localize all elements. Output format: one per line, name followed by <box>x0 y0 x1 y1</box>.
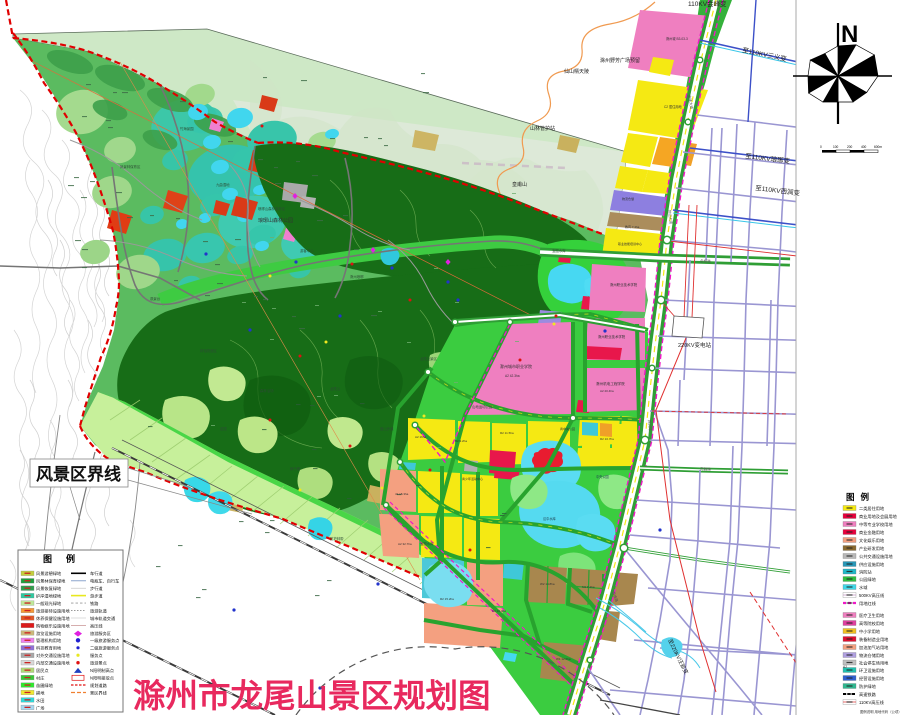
svg-text:规划道路: 规划道路 <box>90 682 108 689</box>
svg-text:内部交通设施用地: 内部交通设施用地 <box>36 660 70 667</box>
svg-text:游览设施用地: 游览设施用地 <box>36 630 62 637</box>
svg-text:500KV高压线: 500KV高压线 <box>859 592 885 599</box>
svg-text:全椒路: 全椒路 <box>700 258 711 264</box>
svg-text:中央公园: 中央公园 <box>596 474 609 479</box>
svg-text:休养保健设施用地: 休养保健设施用地 <box>36 615 70 622</box>
svg-text:旅游景点: 旅游景点 <box>90 660 107 667</box>
svg-text:社会停车场用地: 社会停车场用地 <box>859 660 889 667</box>
svg-text:高速铁路: 高速铁路 <box>859 691 877 698</box>
svg-text:山地运动公园: 山地运动公园 <box>472 404 493 409</box>
svg-text:竹海景园: 竹海景园 <box>180 126 194 131</box>
svg-text:R2 10.4ha: R2 10.4ha <box>492 609 506 613</box>
svg-text:用地红线: 用地红线 <box>859 600 877 607</box>
svg-text:110KV会峰变: 110KV会峰变 <box>688 0 727 8</box>
svg-text:装备制造业用地: 装备制造业用地 <box>859 636 889 643</box>
svg-text:600m: 600m <box>874 145 882 149</box>
svg-text:滁州琅琊: 滁州琅琊 <box>350 274 364 279</box>
svg-text:图例说明 用地代码（公顷）: 图例说明 用地代码（公顷） <box>860 709 900 714</box>
svg-text:护岸湿地绿地: 护岸湿地绿地 <box>36 593 62 600</box>
svg-text:村庄: 村庄 <box>36 675 44 682</box>
svg-text:城市轨道交通: 城市轨道交通 <box>90 615 116 622</box>
svg-text:A2 42.3ha: A2 42.3ha <box>505 374 520 378</box>
svg-text:购物娱乐设施用地: 购物娱乐设施用地 <box>36 622 70 629</box>
svg-text:物流仓储用地: 物流仓储用地 <box>859 652 885 659</box>
svg-text:龙尾山: 龙尾山 <box>330 386 341 391</box>
svg-text:议中水库: 议中水库 <box>543 516 557 521</box>
svg-text:服务点: 服务点 <box>90 652 103 659</box>
svg-text:科技教育用地: 科技教育用地 <box>36 645 62 652</box>
svg-text:图例: 图例 <box>846 492 875 502</box>
svg-text:教育 7.4ha: 教育 7.4ha <box>625 224 640 229</box>
svg-text:文化娱乐用地: 文化娱乐用地 <box>859 537 885 544</box>
svg-text:旅游轨道: 旅游轨道 <box>90 608 108 615</box>
svg-text:物流仓储: 物流仓储 <box>622 196 634 201</box>
svg-text:青少年活动中心: 青少年活动中心 <box>462 476 483 481</box>
svg-text:滁州野芳广场预留: 滁州野芳广场预留 <box>600 57 640 64</box>
svg-text:狮子峰: 狮子峰 <box>290 466 301 471</box>
svg-text:旅游接待设施用地: 旅游接待设施用地 <box>36 608 70 615</box>
svg-text:滁州城市职业学院: 滁州城市职业学院 <box>500 363 532 369</box>
svg-text:电瓶车、自行车: 电瓶车、自行车 <box>90 578 119 585</box>
svg-text:W1 12.6ha: W1 12.6ha <box>556 657 571 661</box>
svg-text:高压线: 高压线 <box>90 622 103 629</box>
svg-text:滁州职业技术学院: 滁州职业技术学院 <box>598 334 626 339</box>
svg-text:A2 16ha: A2 16ha <box>415 435 427 439</box>
svg-text:管理机构用地: 管理机构用地 <box>36 637 62 644</box>
svg-text:高等院校用地: 高等院校用地 <box>859 620 885 627</box>
svg-text:林相改造区: 林相改造区 <box>200 348 218 353</box>
svg-text:R2 11.5ha: R2 11.5ha <box>500 431 514 435</box>
svg-text:图例: 图例 <box>43 553 89 564</box>
svg-text:N阳明接驳点: N阳明接驳点 <box>90 675 114 682</box>
svg-text:广场: 广场 <box>36 704 44 711</box>
svg-text:二类居住用地: 二类居住用地 <box>859 505 885 512</box>
svg-text:滁州职业技术学院: 滁州职业技术学院 <box>610 282 638 287</box>
svg-text:220KV变电站: 220KV变电站 <box>678 341 712 349</box>
svg-text:W2 14.8ha: W2 14.8ha <box>540 582 555 586</box>
svg-text:A2: A2 <box>843 665 847 669</box>
svg-text:R2 15.2ha: R2 15.2ha <box>440 597 454 601</box>
svg-text:产业研发用地: 产业研发用地 <box>859 545 885 552</box>
svg-text:风景林保育绿地: 风景林保育绿地 <box>36 578 66 585</box>
svg-text:供应设施用地: 供应设施用地 <box>859 561 885 568</box>
svg-text:防护绿地: 防护绿地 <box>859 683 877 690</box>
svg-text:山林管护站: 山林管护站 <box>530 125 555 132</box>
svg-text:宝图水库: 宝图水库 <box>420 541 434 546</box>
svg-text:防护林带: 防护林带 <box>330 536 344 541</box>
svg-text:宝图水库: 宝图水库 <box>552 248 566 253</box>
svg-text:旅游服务区: 旅游服务区 <box>90 630 111 637</box>
svg-text:滁州机电工程学院: 滁州机电工程学院 <box>596 381 625 386</box>
svg-text:职业技能培训中心: 职业技能培训中心 <box>618 241 642 246</box>
svg-text:耕地: 耕地 <box>36 689 45 696</box>
svg-text:A2 32.7ha: A2 32.7ha <box>398 542 412 546</box>
svg-text:仙山糈天陵: 仙山糈天陵 <box>564 68 589 75</box>
svg-text:M1 8.4ha: M1 8.4ha <box>582 585 595 589</box>
svg-text:N: N <box>841 21 858 48</box>
svg-text:加油加气站用地: 加油加气站用地 <box>859 644 889 651</box>
svg-text:花园路: 花园路 <box>700 466 711 472</box>
svg-text:苗圃绿地: 苗圃绿地 <box>36 682 54 689</box>
svg-text:对外交通设施用地: 对外交通设施用地 <box>36 652 70 659</box>
svg-text:中等专业学校用地: 中等专业学校用地 <box>859 521 893 528</box>
svg-text:R2 10.7ha: R2 10.7ha <box>600 437 614 441</box>
svg-text:苗圃: 苗圃 <box>220 426 227 431</box>
svg-text:公园绿地: 公园绿地 <box>859 576 877 583</box>
svg-text:C2 居住用地: C2 居住用地 <box>664 104 683 109</box>
svg-text:盘山步道: 盘山步道 <box>380 426 394 431</box>
svg-text:100: 100 <box>833 145 839 149</box>
svg-text:商业用地及会展用地: 商业用地及会展用地 <box>859 513 898 520</box>
svg-text:琅琊山森林康养区: 琅琊山森林康养区 <box>258 206 286 211</box>
svg-text:环卫设施用地: 环卫设施用地 <box>859 667 885 674</box>
svg-text:森林浴场: 森林浴场 <box>260 388 274 393</box>
svg-text:游客中心: 游客中心 <box>300 248 314 253</box>
svg-text:200: 200 <box>847 145 853 149</box>
svg-text:琅琊山森林公园: 琅琊山森林公园 <box>258 217 293 224</box>
svg-text:中小学用地: 中小学用地 <box>859 628 881 635</box>
svg-text:铁路: 铁路 <box>90 600 99 607</box>
svg-text:A2 20.4ha: A2 20.4ha <box>600 389 614 393</box>
svg-text:N阳明制高点: N阳明制高点 <box>90 667 114 674</box>
svg-text:42 15.3ha: 42 15.3ha <box>395 492 409 496</box>
svg-text:400: 400 <box>861 145 867 149</box>
svg-text:凤景林保育区: 凤景林保育区 <box>120 164 141 169</box>
svg-text:龙尾山景区: 龙尾山景区 <box>420 356 438 361</box>
svg-text:商业金融用地: 商业金融用地 <box>859 529 885 536</box>
svg-text:景区界线: 景区界线 <box>90 689 108 696</box>
svg-text:水域: 水域 <box>859 584 868 590</box>
svg-text:风景恢复绿地: 风景恢复绿地 <box>36 585 62 592</box>
svg-text:风景游憩绿地: 风景游憩绿地 <box>36 570 62 577</box>
svg-text:消防站: 消防站 <box>859 569 872 576</box>
svg-text:风景区界线: 风景区界线 <box>36 464 121 484</box>
svg-text:滁州城 B3-03-3: 滁州城 B3-03-3 <box>666 36 688 41</box>
svg-text:观景台: 观景台 <box>150 296 161 301</box>
svg-text:一般观光绿地: 一般观光绿地 <box>36 600 62 607</box>
svg-text:公共交通设施用地: 公共交通设施用地 <box>859 553 893 560</box>
svg-text:0: 0 <box>820 145 822 149</box>
svg-text:滁州市龙尾山景区规划图: 滁州市龙尾山景区规划图 <box>133 677 491 714</box>
svg-text:商中央公园: 商中央公园 <box>560 426 575 431</box>
svg-text:B2 9.2ha: B2 9.2ha <box>455 439 467 443</box>
svg-text:经营设施用地: 经营设施用地 <box>859 675 885 682</box>
svg-text:医疗卫生用地: 医疗卫生用地 <box>859 612 885 619</box>
svg-text:水田: 水田 <box>36 697 44 704</box>
svg-text:二级旅游服务点: 二级旅游服务点 <box>90 645 119 652</box>
svg-text:110KV高压线: 110KV高压线 <box>859 699 885 706</box>
svg-text:九曲湿地: 九曲湿地 <box>216 182 230 187</box>
svg-text:车行道: 车行道 <box>90 570 103 577</box>
svg-text:皇甫山: 皇甫山 <box>512 181 527 188</box>
svg-text:游步道: 游步道 <box>90 593 103 600</box>
svg-text:一级旅游服务点: 一级旅游服务点 <box>90 637 119 644</box>
svg-text:步行道: 步行道 <box>90 585 103 592</box>
